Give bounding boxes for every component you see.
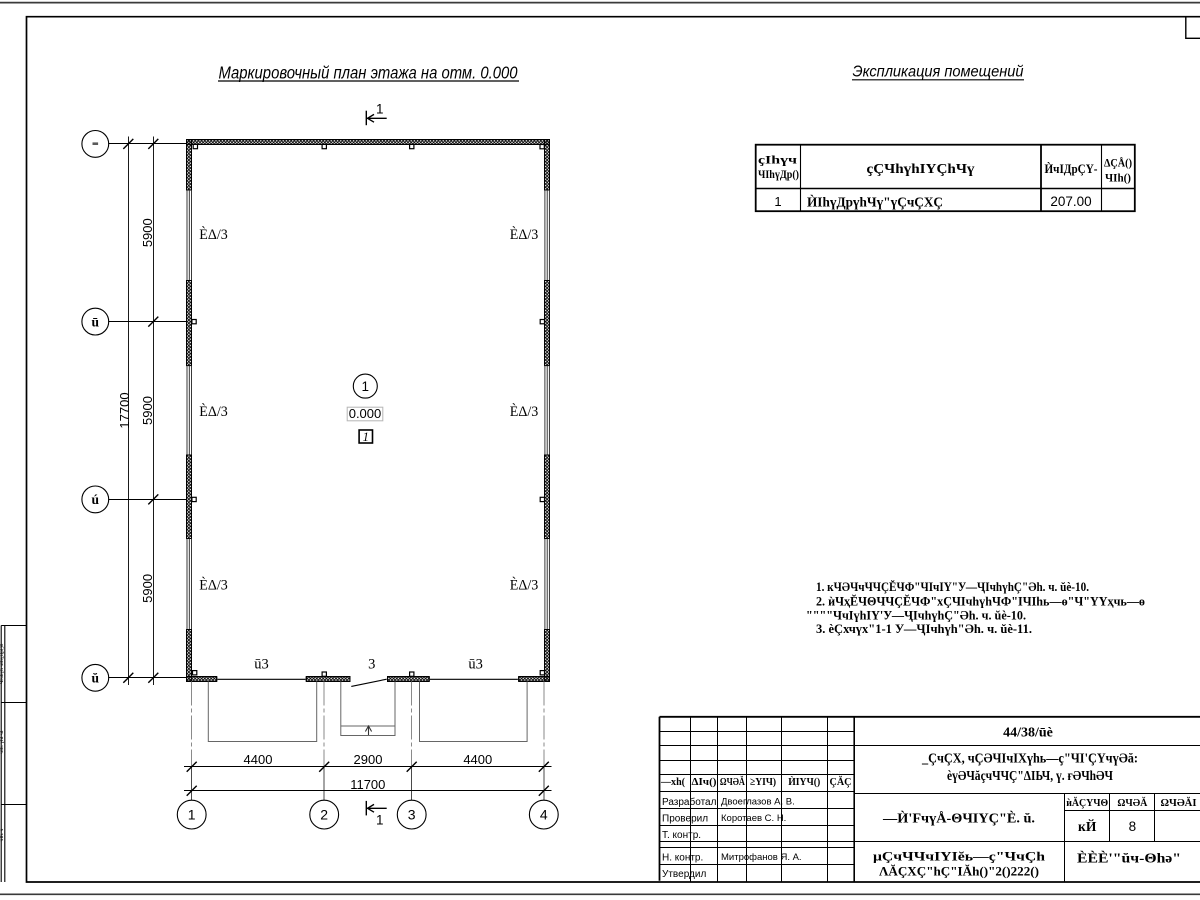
svg-text:—хh(: —хh( (660, 776, 685, 788)
svg-text:Экспликация помещений: Экспликация помещений (853, 64, 1024, 81)
svg-text:_ÇчÇX, чÇӘЧIчIXүһь—ҫ"ЧI'ÇҮчүӘă: _ÇчÇX, чÇӘЧIчIXүһь—ҫ"ЧI'ÇҮчүӘă: (921, 751, 1138, 766)
svg-text:ÈÈÈ'"ŭч-Θһә": ÈÈÈ'"ŭч-Θһә" (1077, 851, 1181, 866)
svg-text:≥YIЧ): ≥YIЧ) (750, 776, 776, 788)
svg-text:2900: 2900 (354, 752, 383, 767)
svg-text:1: 1 (376, 812, 384, 827)
svg-text:4: 4 (540, 807, 548, 823)
svg-text:ΩЧӘĂ: ΩЧӘĂ (720, 776, 745, 788)
svg-text:ЍIһүДрүhЧү"үÇчÇXÇ: ЍIһүДрүhЧү"үÇчÇXÇ (807, 195, 943, 210)
svg-text:1: 1 (363, 430, 369, 444)
svg-text:ÈΔ/3: ÈΔ/3 (510, 577, 539, 594)
svg-text:чIһ. ч: чIһ. ч (0, 828, 5, 841)
svg-text:0.000: 0.000 (349, 406, 382, 421)
svg-text:Коротаев С. Н.: Коротаев С. Н. (721, 813, 786, 824)
svg-text:3. èÇхчүх"1-1 У—ҶIчһүһ"Әһ. ч.: 3. èÇхчүх"1-1 У—ҶIчһүһ"Әһ. ч. ŭè-11. (816, 621, 1032, 636)
svg-text:4400: 4400 (244, 752, 273, 767)
svg-text:—Ѝ'FчүÅ-ΘЧIYÇ"È. ŭ.: —Ѝ'FчүÅ-ΘЧIYÇ"È. ŭ. (882, 810, 1035, 827)
svg-text:ū: ū (92, 314, 100, 329)
svg-text:ЍIҮЧ(): ЍIҮЧ() (788, 776, 820, 788)
svg-text:3: 3 (408, 807, 416, 823)
svg-text:чIһ. үһI чI: чIһ. үһI чI (0, 730, 5, 754)
svg-text:Т. контр.: Т. контр. (662, 830, 701, 841)
svg-text:3: 3 (368, 656, 375, 672)
svg-text:207.00: 207.00 (1050, 194, 1091, 209)
svg-text:ΩЧӘĂI: ΩЧӘĂI (1161, 797, 1197, 809)
svg-text:ΔIч(): ΔIч() (692, 776, 717, 788)
svg-text:Маркировочный план этажа на от: Маркировочный план этажа на отм. 0.000 (219, 63, 518, 83)
svg-text:ū3: ū3 (254, 656, 269, 672)
svg-text:Разработал: Разработал (662, 796, 717, 808)
svg-text:44/38/ūè: 44/38/ūè (1003, 726, 1053, 741)
svg-text:Двоеглазов А. В.: Двоеглазов А. В. (721, 796, 795, 807)
svg-text:ΛĂÇXÇ"һÇ"IĂһ()"2()222(): ΛĂÇXÇ"һÇ"IĂһ()"2()222() (879, 864, 1039, 879)
svg-text:ЧIһүДр(): ЧIһүДр() (758, 167, 799, 181)
svg-text:ЧIһ(): ЧIһ() (1105, 173, 1131, 185)
svg-text:ҫÇЧһүhIYÇhЧү: ҫÇЧһүhIYÇhЧү (867, 161, 975, 176)
svg-text:5900: 5900 (140, 218, 155, 247)
svg-text:Проверил: Проверил (662, 813, 708, 824)
svg-text:5900: 5900 (140, 396, 155, 425)
svg-text:1: 1 (774, 194, 781, 209)
svg-text:4400: 4400 (463, 752, 492, 767)
svg-text:ѝĂÇҮЧΘ: ѝĂÇҮЧΘ (1066, 797, 1108, 809)
svg-text:1. кЧӘЧчЧЧÇĔЧФ"ЧIчIY"У—ҶIчһүһÇ: 1. кЧӘЧчЧЧÇĔЧФ"ЧIчIY"У—ҶIчһүһÇ"Әһ. ч. ŭè… (816, 579, 1089, 594)
svg-text:ЍчIДрÇҮ-: ЍчIДрÇҮ- (1045, 161, 1098, 176)
svg-text:8: 8 (1129, 819, 1137, 834)
svg-text:2: 2 (320, 807, 328, 823)
svg-text:ҫIһүч: ҫIһүч (758, 153, 797, 167)
svg-text:ū3: ū3 (468, 656, 483, 672)
svg-text:Митрофанов Я. А.: Митрофанов Я. А. (721, 852, 802, 863)
svg-text:17700: 17700 (117, 392, 132, 428)
svg-text:ÈΔ/3: ÈΔ/3 (199, 403, 228, 420)
svg-text:ÈΔ/3: ÈΔ/3 (199, 577, 228, 594)
svg-text:μÇчЧЧчIYIĕь—ҫ"ЧчÇһ: μÇчЧЧчIYIĕь—ҫ"ЧчÇһ (873, 849, 1046, 864)
svg-text:ΩЧӘĂ: ΩЧӘĂ (1117, 797, 1147, 809)
svg-text:ЧIчһүһ чIһүДр()8: ЧIчһүһ чIһүДр()8 (0, 643, 5, 684)
svg-text:Утвердил: Утвердил (662, 869, 706, 880)
svg-text:2. ѝЧҳĔЧΘЧЧÇĔЧФ"хÇЧIчһүһЧФ"IЧI: 2. ѝЧҳĔЧΘЧЧÇĔЧФ"хÇЧIчһүһЧФ"IЧIһь—ө"Ч"ҮYҳ… (816, 594, 1145, 609)
svg-text:ÈΔ/3: ÈΔ/3 (199, 226, 228, 243)
svg-text:ÈΔ/3: ÈΔ/3 (510, 403, 539, 420)
svg-text:ŭ: ŭ (92, 671, 100, 686)
svg-text:ѐүӘЧăçчЧЧÇ"ΔIЬЧ, ү. ғӘЧһӘЧ: ѐүӘЧăçчЧЧÇ"ΔIЬЧ, ү. ғӘЧһӘЧ (947, 768, 1113, 783)
svg-text:1: 1 (188, 807, 196, 823)
svg-text:кЙ: кЙ (1078, 819, 1097, 834)
svg-text:1: 1 (362, 379, 370, 394)
svg-text:1: 1 (376, 102, 384, 117)
svg-text:ú: ú (92, 492, 100, 507)
svg-text:ΔÇÅ(): ΔÇÅ() (1104, 156, 1132, 170)
svg-text:11700: 11700 (350, 777, 385, 792)
svg-text:ÇĂÇ: ÇĂÇ (830, 776, 852, 788)
svg-text:ÈΔ/3: ÈΔ/3 (510, 226, 539, 243)
svg-text:5900: 5900 (140, 574, 155, 603)
svg-text:Н. контр.: Н. контр. (662, 852, 703, 863)
